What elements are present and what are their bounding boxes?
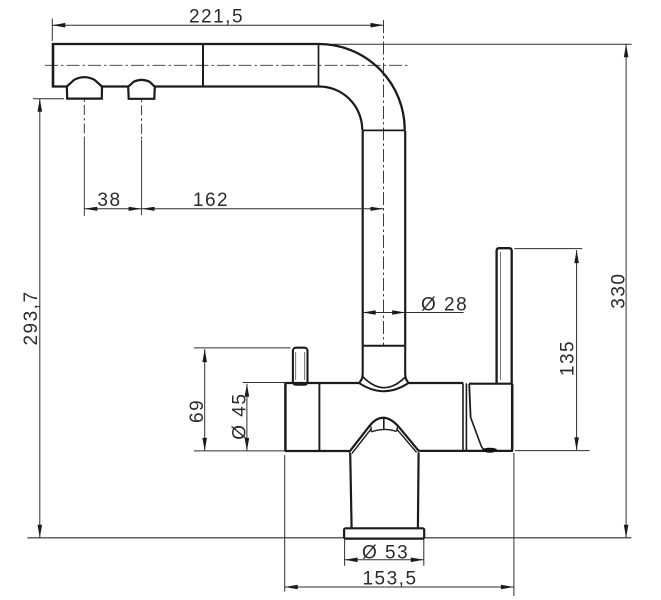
svg-text:38: 38	[97, 190, 121, 211]
svg-text:293,7: 293,7	[21, 290, 42, 345]
svg-text:162: 162	[193, 190, 229, 211]
svg-text:153,5: 153,5	[362, 568, 417, 589]
svg-text:330: 330	[609, 272, 630, 308]
svg-text:221,5: 221,5	[189, 7, 244, 28]
svg-text:Ø 28: Ø 28	[421, 294, 468, 315]
svg-text:69: 69	[187, 399, 208, 423]
svg-text:Ø 45: Ø 45	[230, 393, 251, 440]
svg-text:Ø 53: Ø 53	[362, 542, 409, 563]
svg-text:135: 135	[558, 340, 579, 376]
